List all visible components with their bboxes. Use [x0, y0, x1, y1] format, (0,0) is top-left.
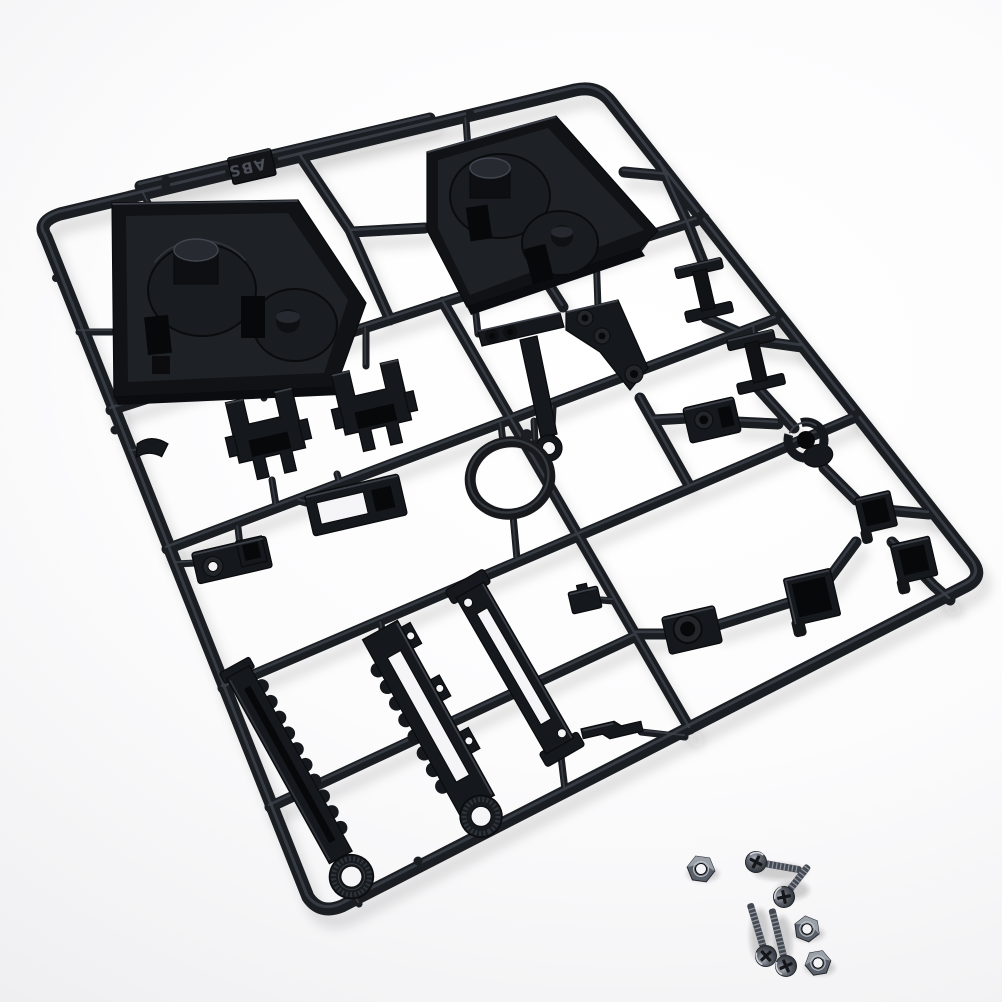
- part-clip-block-2: [581, 715, 643, 744]
- part-clip-block-1: [567, 581, 602, 614]
- part-drilled-plate-2: [661, 605, 722, 654]
- part-tray-lid: [305, 474, 408, 537]
- part-u-bracket-1: [218, 386, 318, 485]
- part-gearbox-tray-right: [427, 116, 658, 315]
- part-gearbox-tray-left: [112, 200, 366, 405]
- part-stepped-bracket: [566, 300, 648, 390]
- part-ibeam-1: [674, 257, 733, 322]
- part-drilled-plate-1: [683, 397, 742, 444]
- part-u-bracket-2: [324, 358, 424, 457]
- product-photo: ABS: [0, 0, 1002, 1002]
- hex-nut-2: [791, 914, 824, 945]
- hardware: [685, 850, 835, 979]
- sprue-photo: ABS: [0, 0, 1002, 1002]
